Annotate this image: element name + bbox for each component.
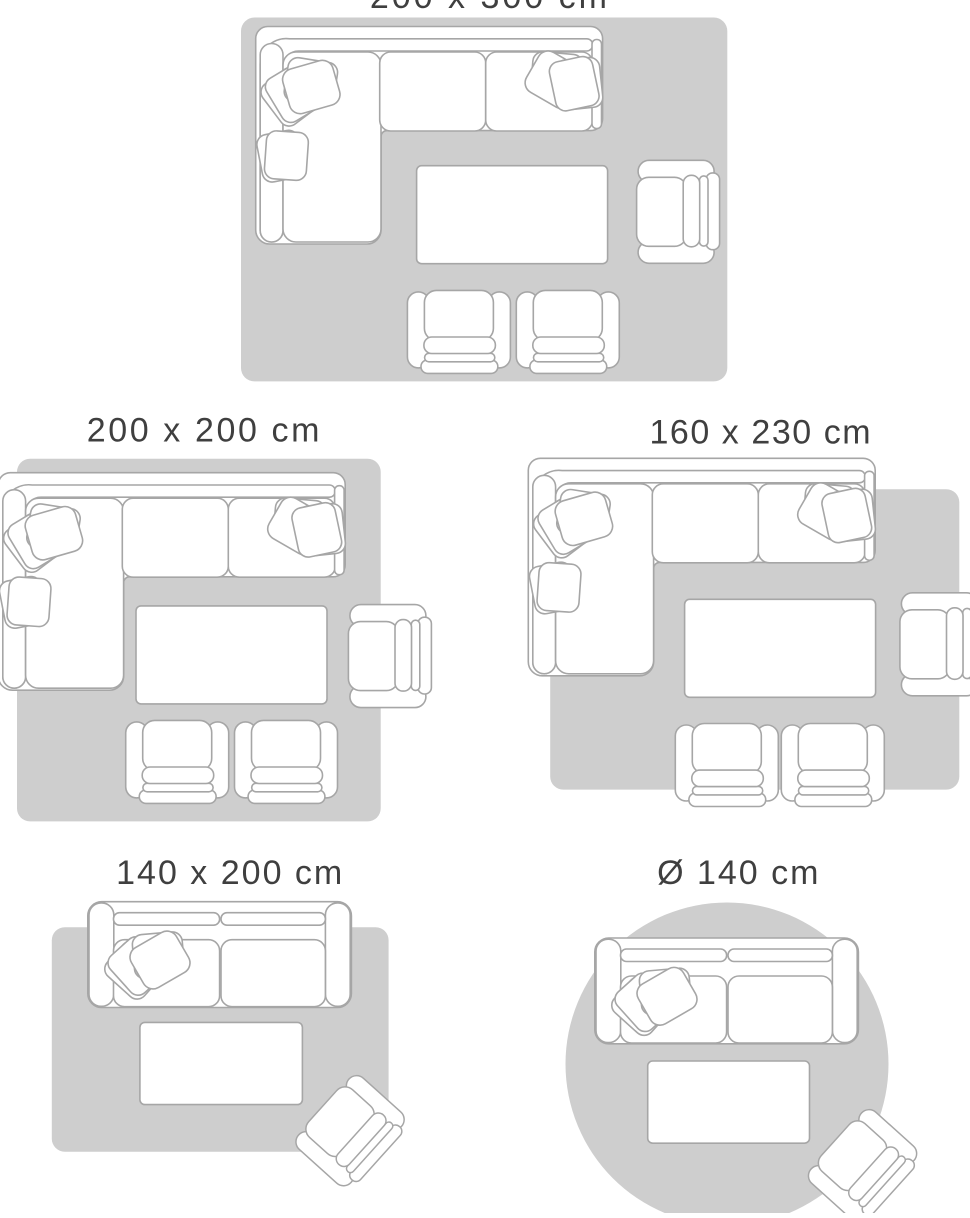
svg-text:200 x 300 cm: 200 x 300 cm bbox=[370, 0, 610, 16]
svg-text:Ø 140 cm: Ø 140 cm bbox=[657, 854, 820, 892]
svg-text:140 x 200 cm: 140 x 200 cm bbox=[116, 854, 344, 892]
svg-text:160 x 230 cm: 160 x 230 cm bbox=[649, 414, 872, 452]
svg-text:200 x 200 cm: 200 x 200 cm bbox=[87, 412, 322, 450]
